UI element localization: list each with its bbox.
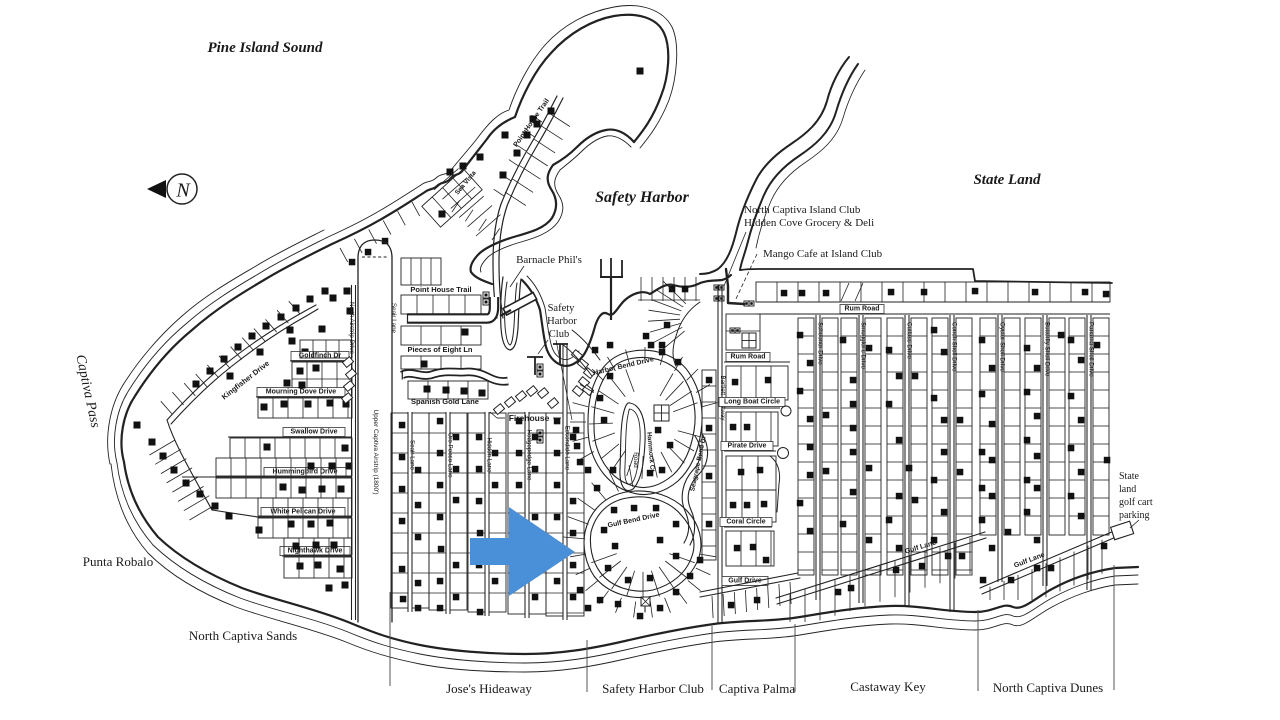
svg-text:Coral Circle: Coral Circle bbox=[726, 519, 765, 526]
svg-text:Oyster Shell Drive: Oyster Shell Drive bbox=[999, 322, 1006, 372]
svg-text:Spanish Gold Lane: Spanish Gold Lane bbox=[411, 397, 479, 406]
svg-text:Harbor: Harbor bbox=[547, 316, 577, 327]
svg-text:Rum Road: Rum Road bbox=[845, 306, 880, 313]
svg-text:Punta Robalo: Punta Robalo bbox=[83, 554, 153, 569]
svg-text:Jose's Hideaway: Jose's Hideaway bbox=[446, 681, 532, 696]
svg-text:golf cart: golf cart bbox=[1119, 497, 1153, 508]
svg-text:Seair Lane: Seair Lane bbox=[390, 303, 397, 333]
svg-text:Castaway Key: Castaway Key bbox=[850, 679, 926, 694]
svg-text:Pine Island Sound: Pine Island Sound bbox=[207, 40, 323, 56]
svg-text:North Captiva Dunes: North Captiva Dunes bbox=[993, 680, 1103, 695]
svg-text:State Land: State Land bbox=[973, 172, 1041, 188]
svg-text:Smuggler's Drive: Smuggler's Drive bbox=[860, 322, 867, 369]
svg-text:Rum Road: Rum Road bbox=[731, 354, 766, 361]
svg-text:Hidden Cove Grocery & Deli: Hidden Cove Grocery & Deli bbox=[744, 217, 874, 229]
svg-text:Swallow Drive: Swallow Drive bbox=[290, 429, 337, 436]
svg-text:parking: parking bbox=[1119, 510, 1150, 521]
svg-text:State: State bbox=[1119, 471, 1140, 482]
svg-text:Point House Trail: Point House Trail bbox=[410, 285, 471, 294]
svg-text:Hummingbird Drive: Hummingbird Drive bbox=[273, 469, 338, 476]
svg-text:Firehouse: Firehouse bbox=[509, 413, 550, 423]
svg-text:Captiva Palma: Captiva Palma bbox=[719, 681, 795, 696]
svg-text:Mourning Dove Drive: Mourning Dove Drive bbox=[266, 389, 337, 396]
svg-text:N: N bbox=[175, 180, 191, 202]
svg-text:Safety Harbor: Safety Harbor bbox=[595, 189, 690, 206]
svg-text:Schooner Drive: Schooner Drive bbox=[817, 322, 824, 365]
svg-text:Long Boat Circle: Long Boat Circle bbox=[724, 399, 780, 406]
svg-text:Safety: Safety bbox=[548, 303, 576, 314]
svg-text:Barnacle Phil's: Barnacle Phil's bbox=[516, 254, 582, 266]
svg-text:Mango Cafe at Island Club: Mango Cafe at Island Club bbox=[763, 248, 883, 260]
svg-text:Pieces of Eight Ln: Pieces of Eight Ln bbox=[407, 345, 472, 354]
svg-text:Upper Captiva Airstrip (1800'): Upper Captiva Airstrip (1800') bbox=[372, 409, 379, 494]
svg-text:Conch Shell Drive: Conch Shell Drive bbox=[951, 322, 958, 372]
svg-text:Road: Road bbox=[632, 452, 639, 468]
svg-text:Goldfinch Dr: Goldfinch Dr bbox=[299, 353, 342, 360]
svg-text:North Captiva Island Club: North Captiva Island Club bbox=[744, 204, 861, 216]
svg-text:Club: Club bbox=[549, 329, 569, 340]
svg-text:Pirate Drive: Pirate Drive bbox=[728, 443, 767, 450]
svg-text:North Captiva Sands: North Captiva Sands bbox=[189, 628, 297, 643]
svg-text:land: land bbox=[1119, 484, 1136, 495]
svg-text:Safety Harbor Club: Safety Harbor Club bbox=[602, 681, 704, 696]
svg-text:North Airstrip Drive: North Airstrip Drive bbox=[348, 302, 355, 354]
